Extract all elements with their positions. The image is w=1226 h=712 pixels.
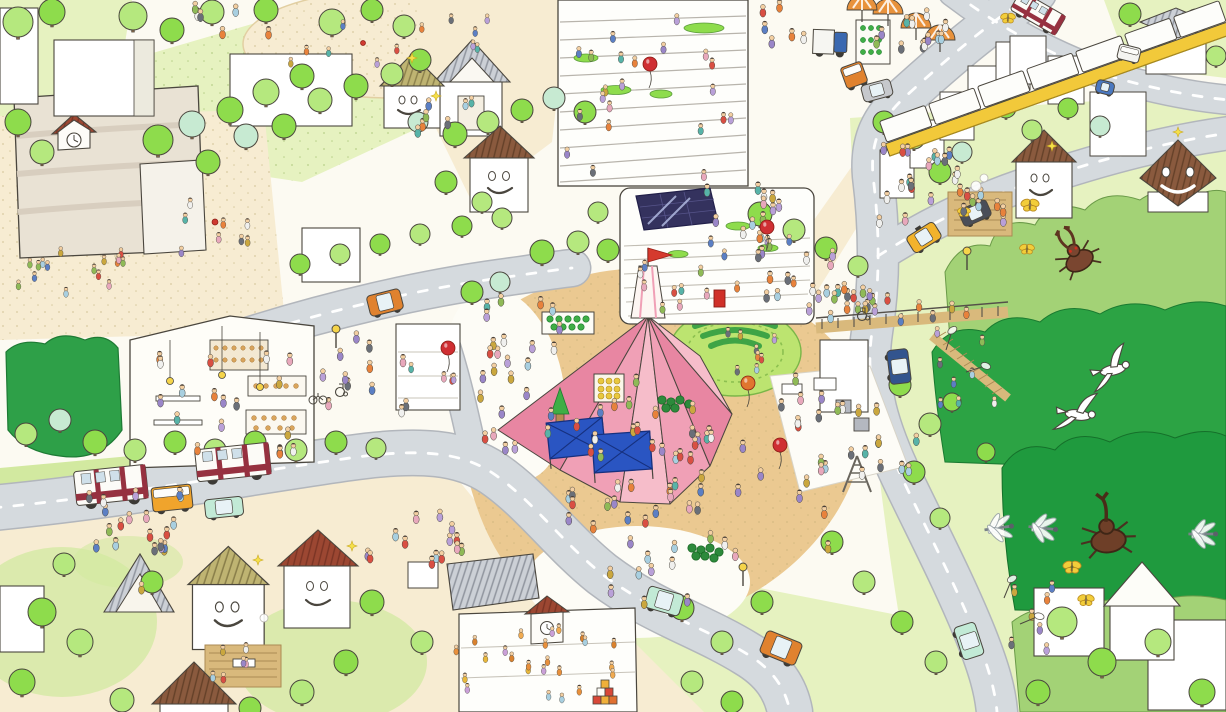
person [465,683,470,693]
person [770,190,776,203]
person [709,58,714,70]
person [158,538,164,551]
person [772,333,777,343]
person [210,671,215,682]
person [728,113,733,124]
person [738,329,743,339]
person [626,396,632,409]
person [243,642,248,653]
person [764,290,770,303]
person [179,384,185,397]
bread-shelf [210,340,268,370]
vehicle-car [884,348,912,385]
building-shade [134,40,154,116]
person [28,258,33,268]
person [157,355,163,368]
produce-shelves [856,20,890,64]
tree [110,688,134,712]
person [760,4,766,17]
person [566,512,572,525]
person [491,363,497,376]
person [598,448,604,461]
person [672,285,677,296]
person [220,26,226,39]
fruit-crates [594,374,624,402]
balcony-plants [650,90,672,98]
person [171,516,177,529]
person [937,357,942,368]
person [926,158,932,171]
person [341,20,346,30]
person [116,253,121,263]
person [1049,580,1055,592]
person [1009,637,1015,649]
produce-stall [542,312,594,334]
person [618,51,623,63]
person [713,214,719,227]
person [337,348,343,361]
person [649,439,655,452]
person [661,42,666,53]
person [769,36,775,49]
person [627,536,633,549]
person [437,509,443,522]
person [679,283,684,294]
person [58,246,63,256]
person [777,0,783,12]
person [862,445,868,458]
apartment-small [396,324,460,410]
person [126,511,132,524]
person [938,31,944,44]
person [761,196,767,209]
person [234,397,240,410]
person [793,372,799,385]
person [961,203,967,216]
person [898,314,904,326]
person [394,44,399,54]
person [454,645,459,655]
person [219,419,225,432]
person [216,232,221,243]
person [610,668,615,678]
person [841,281,847,294]
person [710,84,715,96]
person [469,96,474,107]
person [740,226,746,239]
person [830,248,836,261]
person [791,275,796,287]
person [441,371,446,382]
person [874,402,880,415]
person [487,346,493,359]
person [876,435,882,448]
person [393,528,399,541]
person [546,690,551,700]
town-illustration-canvas [0,0,1226,712]
hanging-lamp [219,372,226,379]
person [588,444,594,457]
person [970,194,976,207]
person [147,529,153,542]
person [483,652,488,662]
person [366,339,372,352]
person [409,362,414,373]
person [545,656,550,666]
house-eye [489,172,496,181]
person [755,249,761,262]
person [704,184,710,197]
smoke-puff [260,614,268,622]
person [92,264,97,274]
person [804,251,810,264]
person [415,125,421,138]
house-eye [215,602,223,612]
person [867,288,873,300]
person [367,550,373,563]
person [471,40,476,50]
person [628,479,634,492]
person [266,26,272,39]
person [835,402,841,415]
person [899,461,905,474]
person [158,394,164,407]
person [353,331,359,344]
person [557,322,563,335]
person [816,290,822,303]
person [638,266,643,278]
person [636,567,642,580]
person [674,14,679,25]
person [611,495,617,508]
person [543,638,548,648]
person [935,326,940,337]
person [502,441,508,454]
person [726,327,731,337]
person [801,31,807,44]
person [943,19,949,32]
person [660,302,665,314]
person [509,652,514,662]
person [342,372,348,385]
person [304,45,309,55]
person [491,428,497,441]
balcony-plants [684,23,724,33]
person [684,593,690,606]
person [607,100,612,112]
person [789,28,795,41]
person [288,57,293,67]
person [704,288,709,300]
person [699,469,705,482]
person [64,287,69,297]
person [485,14,490,24]
person [541,664,546,674]
person [472,635,477,645]
person [220,394,226,407]
person [86,490,92,503]
person [906,463,912,476]
person [449,521,455,534]
person [797,490,803,503]
person [133,488,139,501]
person [824,284,830,297]
person [755,182,761,195]
person [754,363,759,373]
person [1012,584,1018,596]
person [844,301,850,314]
person [672,477,678,490]
person [848,447,854,460]
person [276,376,282,389]
person [722,536,728,549]
person [550,627,555,637]
person [698,483,704,496]
person [653,505,659,518]
person [642,260,647,272]
person [556,623,561,633]
person [1044,643,1050,655]
smoke-puff [971,181,981,191]
person [454,541,460,554]
vehicle-minibus [151,484,194,515]
person [818,462,824,475]
person [177,487,183,500]
person [538,296,544,309]
person [545,425,551,438]
person [399,404,405,417]
person [221,217,226,228]
person [701,169,706,181]
person [106,523,112,536]
person [519,629,524,639]
house-eye [1031,174,1037,182]
person [245,218,250,229]
person [964,187,970,200]
person [899,179,905,192]
person [195,442,201,455]
house-eye [399,96,405,104]
person [557,665,562,675]
person [113,537,119,550]
person [856,404,862,417]
person [40,258,45,268]
person [590,165,595,177]
person [625,511,631,524]
person [413,511,419,524]
person [211,388,217,401]
person [608,584,614,597]
person [909,16,915,29]
person [239,234,244,245]
person [32,271,37,281]
person [957,183,963,196]
person [669,556,675,569]
person [689,425,695,438]
person [403,398,409,411]
person [735,365,740,375]
house-eye [503,172,510,181]
person [478,390,484,403]
person [498,294,504,307]
person [994,198,1000,211]
person [463,98,468,110]
person [956,396,961,407]
person [285,427,291,440]
machine [854,418,869,431]
person [102,255,107,265]
person [722,249,727,260]
ball [212,219,218,225]
person [606,119,611,131]
person [677,448,683,461]
person [938,397,943,408]
person [1044,592,1050,604]
person [819,390,825,403]
person [828,310,834,323]
person [925,32,931,45]
person [264,350,270,363]
person [954,165,960,178]
person [860,285,866,298]
person [964,306,970,318]
person [439,551,445,564]
person [326,47,331,57]
person [96,269,101,279]
person [804,475,810,488]
person [143,510,149,523]
postbox [714,290,725,307]
person [778,398,784,411]
person [605,498,611,511]
person [107,279,112,289]
person [233,4,239,17]
house-eye [1186,167,1194,177]
person [529,340,535,353]
house-eye [1043,174,1049,182]
ball [361,41,366,46]
person [576,46,581,57]
person [692,437,698,450]
person [798,392,804,405]
person [611,398,617,411]
town-illustration [0,0,1226,712]
person [139,582,145,595]
person [876,215,882,228]
person [690,401,696,414]
person [45,260,50,270]
person [767,271,773,284]
hanging-lamp [167,378,174,385]
person [902,212,908,225]
person [735,484,741,497]
person [1000,204,1006,217]
person [810,283,816,296]
person [677,299,682,310]
person [785,272,791,285]
person [503,645,508,655]
person [463,673,468,683]
person [508,371,514,384]
person [451,373,456,384]
person [607,566,613,579]
person [118,518,124,531]
person [369,382,375,395]
person [934,153,940,166]
person [633,374,639,387]
person [885,292,891,304]
person [831,291,837,304]
house-eye [321,582,328,591]
person [429,556,435,569]
person [583,636,588,646]
person [732,548,738,561]
person [924,8,930,21]
person [851,290,857,303]
person [524,387,530,400]
person [577,109,582,121]
person [402,535,408,548]
person [758,468,764,481]
person [577,685,582,695]
person [192,1,198,14]
person [734,281,739,292]
person [672,540,678,553]
person [898,41,904,54]
person [188,198,193,209]
person [762,21,768,34]
person [220,645,225,656]
person [36,260,41,270]
person [447,533,453,546]
person [648,563,654,576]
person [632,56,637,67]
house-eye [231,602,239,612]
person [499,405,505,418]
person [612,638,617,648]
person [592,431,598,444]
person [610,31,615,43]
person [101,494,107,507]
person [770,202,776,215]
person [688,451,694,464]
person [221,672,226,683]
person [164,526,170,539]
person [775,288,781,301]
house-eye [1162,167,1170,177]
person [708,235,713,247]
person [980,335,985,346]
person [505,355,511,368]
person [482,431,488,444]
person [480,370,486,383]
person [930,310,936,322]
person [241,656,246,667]
person [208,354,214,367]
person [668,488,674,501]
person [642,514,648,527]
person [825,540,831,553]
person [913,433,919,446]
person [320,369,326,382]
house-eye [307,582,314,591]
person [816,409,822,422]
person [597,404,603,417]
person [512,441,518,454]
person [946,146,952,159]
person [570,496,576,509]
person [653,406,659,419]
